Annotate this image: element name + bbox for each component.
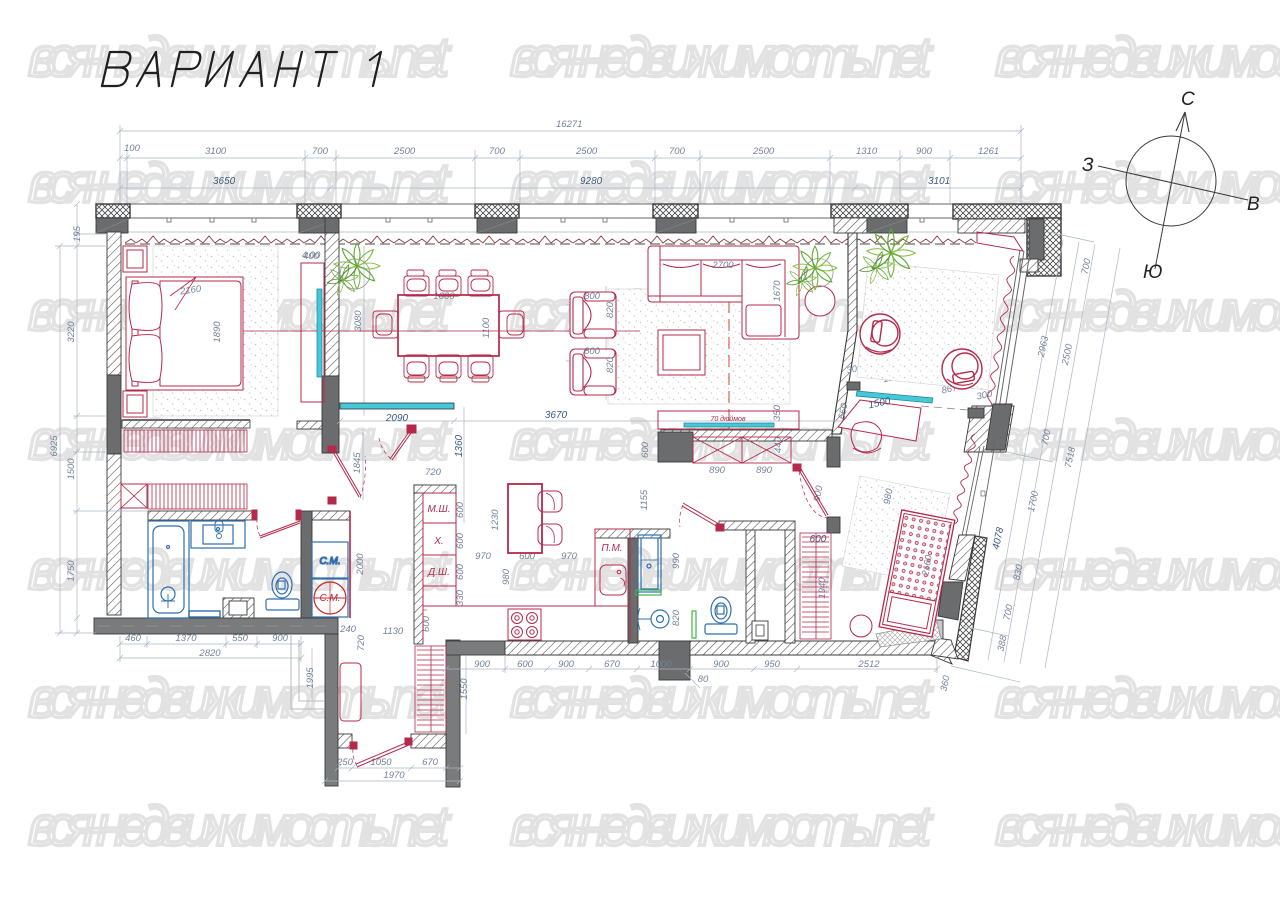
svg-text:900: 900: [916, 146, 933, 157]
svg-text:600: 600: [455, 532, 466, 549]
svg-text:460: 460: [125, 633, 142, 644]
svg-text:Х.: Х.: [433, 536, 443, 547]
svg-text:С: С: [1181, 89, 1195, 110]
svg-text:вся-недвижимость.net: вся-недвижимость.net: [995, 25, 1280, 88]
svg-text:980: 980: [501, 568, 512, 585]
svg-text:900: 900: [713, 659, 730, 670]
svg-text:1155: 1155: [639, 489, 650, 510]
svg-text:16271: 16271: [556, 119, 582, 130]
svg-text:950: 950: [764, 659, 781, 670]
svg-text:600: 600: [810, 534, 827, 545]
svg-text:1310: 1310: [856, 146, 878, 157]
svg-text:1890: 1890: [212, 321, 223, 343]
svg-text:вся-недвижимость.net: вся-недвижимость.net: [28, 794, 451, 857]
svg-text:6925: 6925: [49, 435, 60, 457]
svg-text:2500: 2500: [393, 146, 416, 157]
svg-text:2000: 2000: [355, 553, 366, 576]
svg-text:М.Ш.: М.Ш.: [427, 504, 450, 515]
svg-text:вся-недвижимость.net: вся-недвижимость.net: [28, 151, 451, 214]
svg-text:240: 240: [339, 624, 357, 635]
svg-text:350: 350: [772, 404, 783, 421]
svg-text:820: 820: [605, 356, 616, 373]
svg-text:1130: 1130: [383, 626, 404, 637]
svg-text:1500: 1500: [66, 458, 77, 480]
svg-text:3670: 3670: [545, 410, 568, 421]
svg-text:3100: 3100: [205, 146, 227, 157]
svg-text:600: 600: [640, 441, 651, 458]
svg-text:250: 250: [336, 757, 354, 768]
svg-text:2500: 2500: [575, 146, 598, 157]
svg-text:вся-недвижимость.net: вся-недвижимость.net: [995, 794, 1280, 857]
svg-text:2700: 2700: [711, 260, 734, 271]
svg-text:1000: 1000: [650, 659, 672, 670]
svg-text:330: 330: [455, 589, 466, 606]
svg-text:С.М.: С.М.: [319, 556, 340, 567]
svg-text:1800: 1800: [433, 291, 455, 302]
svg-text:3080: 3080: [353, 310, 364, 332]
svg-text:970: 970: [475, 551, 492, 562]
svg-text:вся-недвижимость.net: вся-недвижимость.net: [510, 25, 933, 88]
svg-text:вся-недвижимость.net: вся-недвижимость.net: [510, 666, 933, 729]
svg-text:1100: 1100: [481, 317, 492, 338]
svg-text:1940: 1940: [817, 577, 828, 599]
svg-text:820: 820: [671, 609, 682, 626]
svg-text:вся-недвижимость.net: вся-недвижимость.net: [28, 25, 451, 88]
svg-text:вся-недвижимость.net: вся-недвижимость.net: [995, 666, 1280, 729]
svg-text:900: 900: [272, 633, 289, 644]
svg-text:700: 700: [669, 146, 686, 157]
svg-text:4.00: 4.00: [302, 250, 321, 261]
svg-text:700: 700: [489, 146, 506, 157]
svg-text:З: З: [1082, 155, 1094, 176]
svg-text:1370: 1370: [175, 633, 197, 644]
svg-text:820: 820: [605, 301, 616, 318]
svg-text:670: 670: [422, 757, 439, 768]
svg-text:550: 550: [232, 633, 249, 644]
svg-text:600: 600: [517, 659, 534, 670]
svg-text:1750: 1750: [66, 560, 77, 582]
svg-text:вся-недвижимость.net: вся-недвижимость.net: [28, 666, 451, 729]
svg-text:1970: 1970: [383, 770, 405, 781]
svg-text:1230: 1230: [490, 509, 501, 531]
svg-text:990: 990: [671, 552, 682, 569]
svg-text:Д.Ш.: Д.Ш.: [427, 567, 450, 578]
svg-text:970: 970: [561, 551, 578, 562]
svg-text:890: 890: [756, 465, 773, 476]
svg-text:2512: 2512: [857, 659, 880, 670]
svg-text:1360: 1360: [454, 434, 465, 457]
svg-text:2500: 2500: [752, 146, 775, 157]
svg-text:3650: 3650: [213, 176, 236, 187]
svg-text:3101: 3101: [928, 176, 950, 187]
svg-text:В: В: [1247, 194, 1260, 215]
svg-text:1050: 1050: [370, 757, 392, 768]
svg-text:С.М.: С.М.: [319, 593, 340, 604]
svg-text:2820: 2820: [198, 648, 221, 659]
svg-text:1261: 1261: [978, 146, 999, 157]
svg-text:1670: 1670: [772, 280, 783, 302]
svg-text:720: 720: [356, 634, 367, 651]
svg-text:900: 900: [558, 659, 575, 670]
svg-text:900: 900: [474, 659, 491, 670]
svg-text:вся-недвижимость.net: вся-недвижимость.net: [995, 408, 1280, 471]
svg-text:1995: 1995: [305, 667, 316, 689]
svg-text:195: 195: [72, 225, 83, 242]
svg-text:1845: 1845: [352, 452, 363, 474]
svg-text:вся-недвижимость.net: вся-недвижимость.net: [995, 538, 1280, 601]
svg-text:720: 720: [425, 467, 442, 478]
svg-text:80: 80: [698, 674, 709, 685]
svg-text:2090: 2090: [385, 413, 409, 424]
svg-text:600: 600: [455, 501, 466, 518]
svg-text:1550: 1550: [459, 678, 470, 700]
svg-text:70 дюймов: 70 дюймов: [710, 415, 745, 423]
svg-text:3220: 3220: [66, 321, 77, 343]
svg-text:Ю: Ю: [1143, 262, 1162, 283]
svg-text:440: 440: [773, 436, 784, 453]
svg-text:П.М.: П.М.: [601, 543, 622, 554]
svg-text:890: 890: [709, 465, 726, 476]
svg-text:670: 670: [604, 659, 621, 670]
svg-text:800: 800: [584, 291, 601, 302]
svg-text:9280: 9280: [580, 176, 603, 187]
svg-text:вся-недвижимость.net: вся-недвижимость.net: [995, 279, 1280, 342]
svg-text:вся-недвижимость.net: вся-недвижимость.net: [510, 794, 933, 857]
svg-text:800: 800: [584, 346, 601, 357]
svg-text:100: 100: [124, 143, 141, 154]
svg-text:700: 700: [312, 146, 329, 157]
svg-text:600: 600: [455, 563, 466, 580]
